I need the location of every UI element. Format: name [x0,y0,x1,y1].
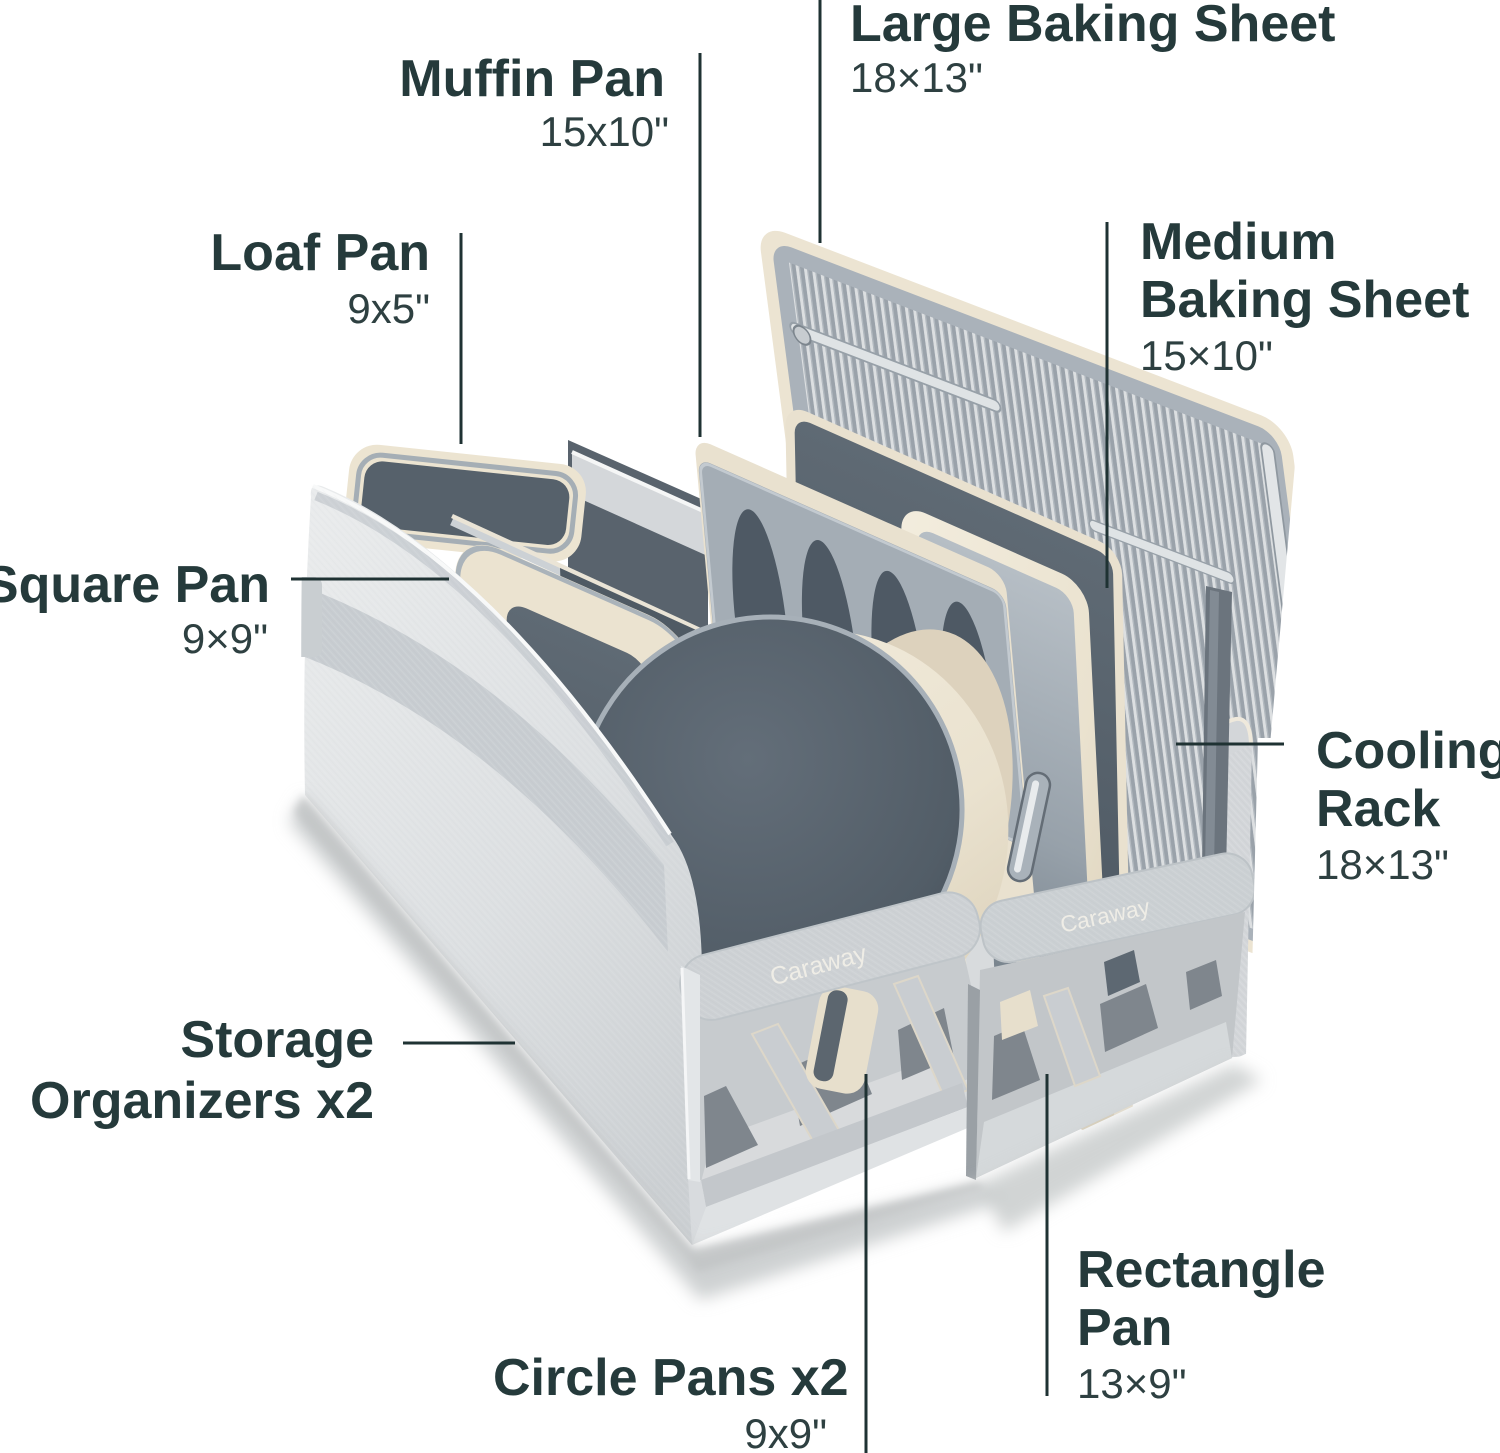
svg-text:18×13": 18×13" [850,54,983,101]
svg-text:9x9": 9x9" [744,1410,827,1453]
svg-text:Pan: Pan [1077,1299,1172,1357]
svg-text:15x10": 15x10" [540,108,669,155]
svg-text:Medium: Medium [1140,213,1336,271]
svg-text:Organizers x2: Organizers x2 [30,1072,374,1130]
svg-text:9x5": 9x5" [347,285,430,332]
svg-text:18×13": 18×13" [1316,841,1449,888]
svg-text:Large Baking Sheet: Large Baking Sheet [850,0,1335,53]
svg-text:Rectangle: Rectangle [1077,1241,1326,1299]
svg-text:Storage: Storage [180,1011,374,1069]
svg-text:9×9": 9×9" [182,615,268,662]
svg-text:13×9": 13×9" [1077,1360,1187,1407]
svg-text:Rack: Rack [1316,780,1440,838]
svg-text:Circle Pans x2: Circle Pans x2 [493,1349,849,1407]
svg-text:Baking Sheet: Baking Sheet [1140,271,1469,329]
svg-text:Square Pan: Square Pan [0,556,270,614]
svg-text:Cooling: Cooling [1316,722,1500,780]
svg-text:15×10": 15×10" [1140,332,1273,379]
svg-text:Loaf Pan: Loaf Pan [210,224,430,282]
svg-text:Muffin Pan: Muffin Pan [399,50,665,108]
